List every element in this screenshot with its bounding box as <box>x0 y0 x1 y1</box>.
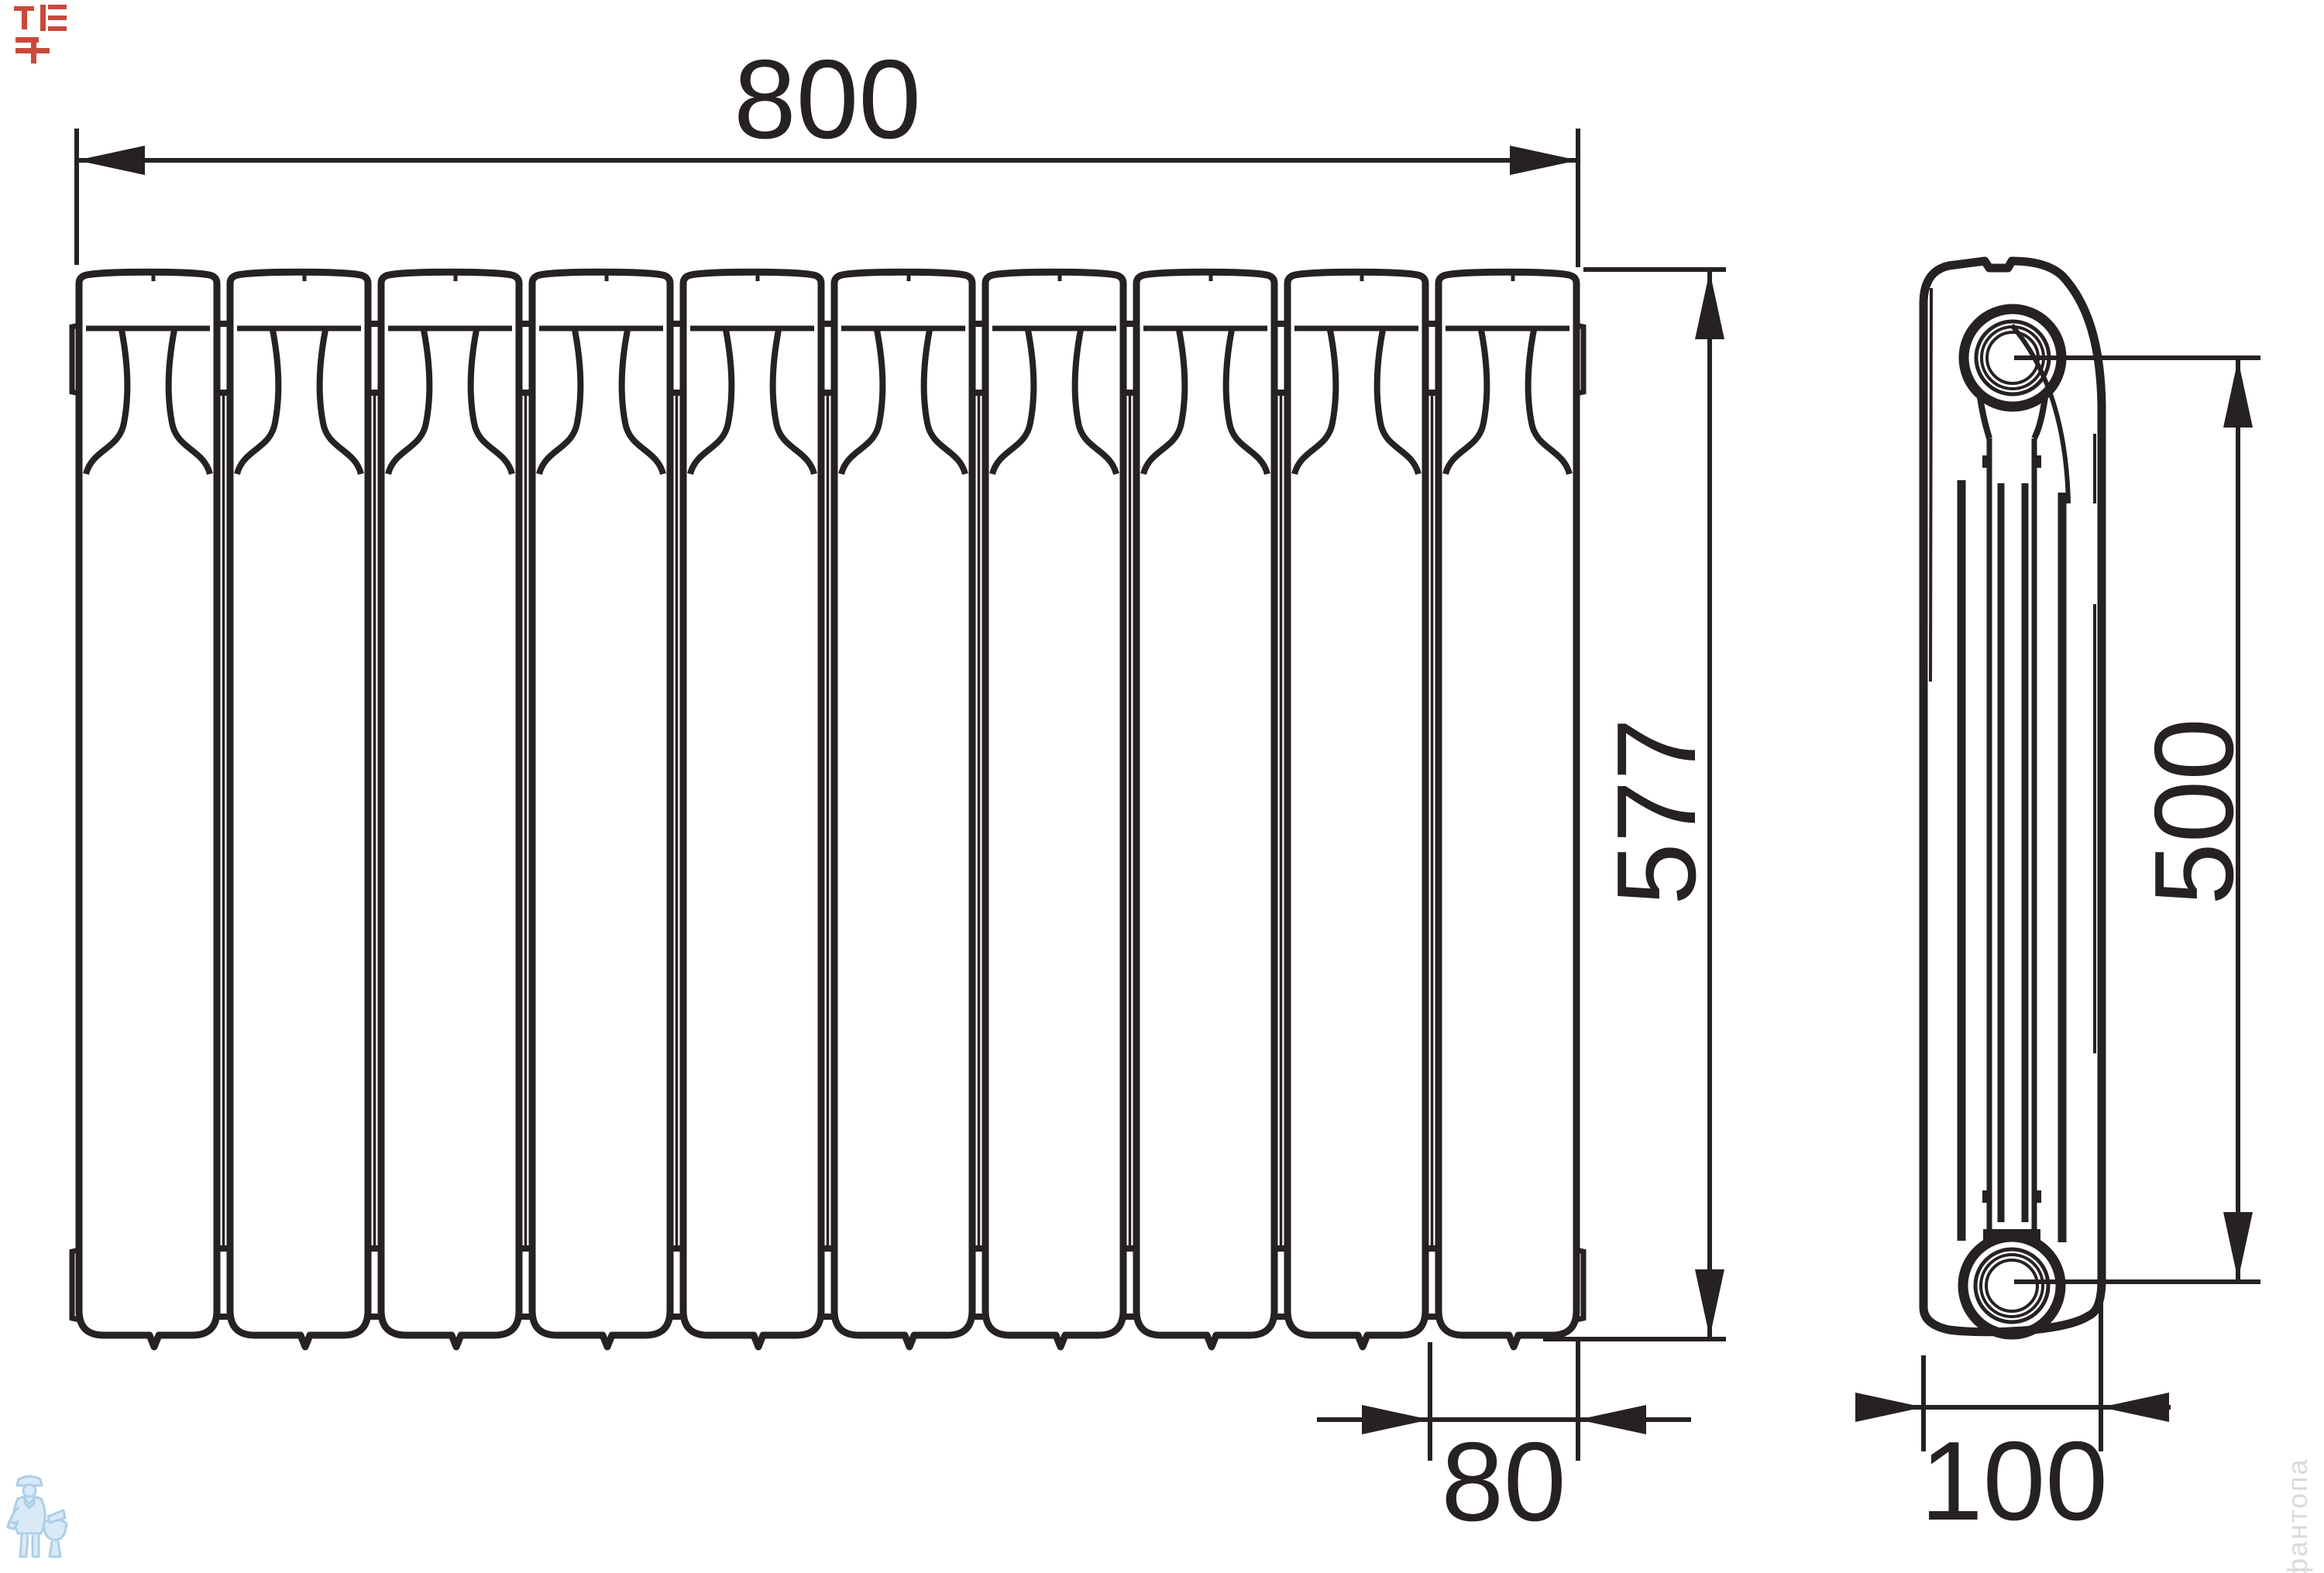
side-view <box>1923 261 2102 1334</box>
arrowhead-up <box>1695 271 1724 339</box>
drawing-canvas: 800 577 80 500 100 <box>0 0 2324 1573</box>
side-profile-outline <box>1923 261 2102 1332</box>
front-view <box>72 272 1583 1347</box>
column-nub <box>1982 1190 1989 1203</box>
dimension-label-width: 800 <box>734 36 921 162</box>
side-left-inner-line <box>1930 288 1931 682</box>
arrowhead-right <box>1362 1405 1430 1434</box>
dimension-label-height: 577 <box>1593 718 1719 905</box>
dimension-label-axis-spacing: 500 <box>2131 718 2257 905</box>
column-nub <box>2035 455 2041 468</box>
dimension-width-800: 800 <box>77 36 1578 267</box>
radiator-section <box>1439 272 1576 1347</box>
arrowhead-left <box>1578 1405 1646 1434</box>
column-nub <box>1982 455 1989 468</box>
radiator-section <box>834 272 972 1347</box>
arrowhead-left <box>2101 1393 2169 1422</box>
radiator-section <box>79 272 217 1347</box>
arrowhead-down <box>1695 1269 1724 1338</box>
radiator-section <box>683 272 821 1347</box>
radiator-section <box>1136 272 1274 1347</box>
plumber-logo <box>8 1476 67 1557</box>
dimension-label-section-width: 80 <box>1441 1419 1566 1544</box>
radiator-section <box>381 272 519 1347</box>
dimension-label-depth: 100 <box>1920 1418 2108 1544</box>
toilet-bowl <box>44 1527 66 1540</box>
plumber-legs <box>20 1534 39 1557</box>
radiator-section <box>230 272 368 1347</box>
arrowhead-right <box>1510 146 1578 175</box>
dimension-section-width-80: 80 <box>1317 1339 1691 1544</box>
corner-red-mark <box>14 5 67 64</box>
radiator-section <box>985 272 1123 1347</box>
radiator-section <box>1287 272 1425 1347</box>
arrowhead-up <box>2223 359 2253 428</box>
arrowhead-right <box>1855 1393 1923 1422</box>
toilet-pedestal <box>50 1541 60 1557</box>
radiator-technical-drawing: 800 577 80 500 100 <box>0 0 2324 1573</box>
vertical-watermark-text: фантопа <box>2281 1458 2313 1573</box>
arrowhead-down <box>2223 1212 2253 1280</box>
column-nub <box>2035 1190 2041 1203</box>
radiator-section <box>532 272 670 1347</box>
arrowhead-left <box>77 146 145 175</box>
